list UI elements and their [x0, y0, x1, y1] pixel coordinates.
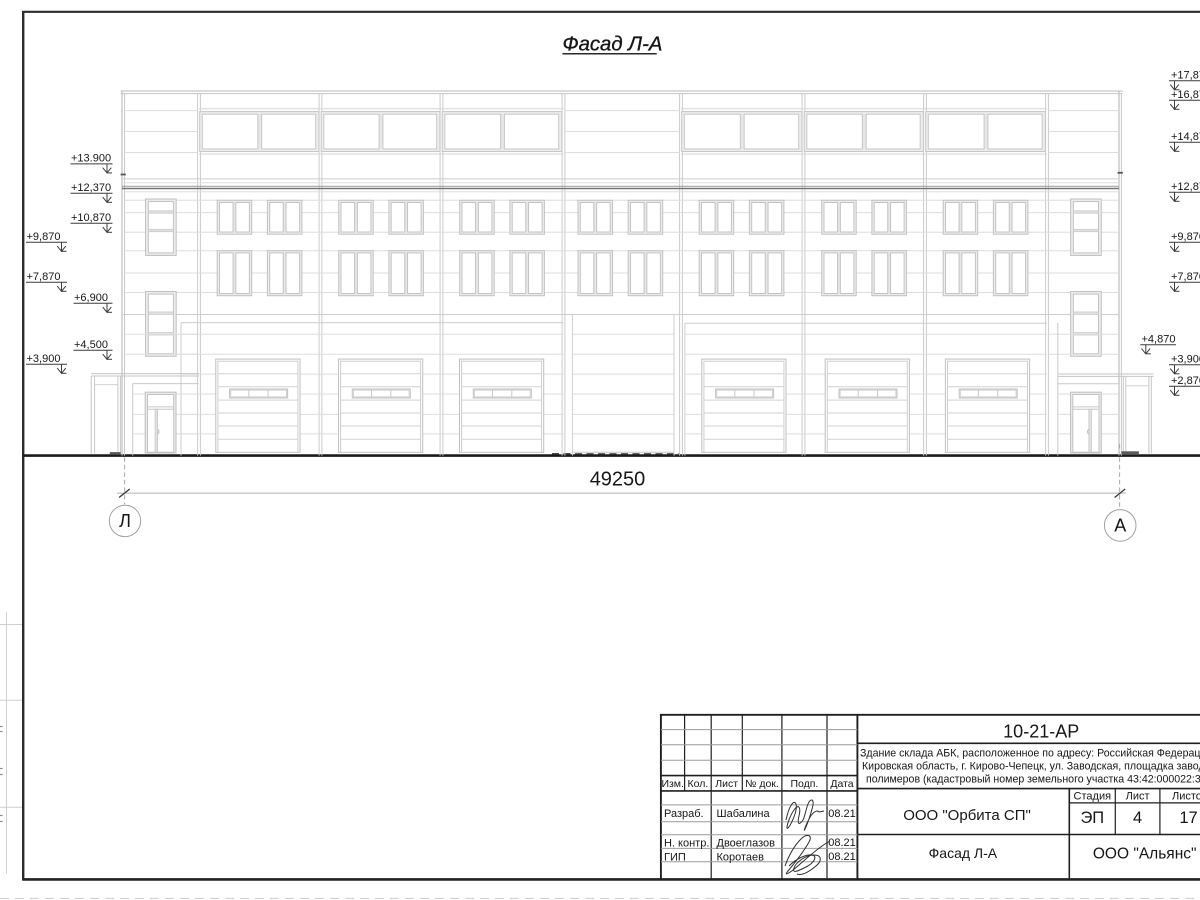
svg-text:ООО "Альянс": ООО "Альянс": [1093, 845, 1197, 862]
svg-text:+16,870: +16,870: [1171, 89, 1200, 101]
svg-text:Фасад Л-А: Фасад Л-А: [929, 845, 998, 861]
svg-text:+4,500: +4,500: [74, 339, 108, 351]
svg-text:Здание склада АБК, расположенн: Здание склада АБК, расположенное по адре…: [860, 747, 1200, 759]
svg-text:ООО "Орбита СП": ООО "Орбита СП": [903, 807, 1031, 824]
svg-text:+4,870: +4,870: [1142, 334, 1176, 346]
svg-text:Листов: Листов: [1172, 791, 1200, 803]
svg-text:+12,870: +12,870: [1171, 181, 1200, 193]
svg-text:Кол.: Кол.: [688, 778, 709, 790]
svg-text:+7,870: +7,870: [27, 271, 61, 283]
svg-text:полимеров (кадастровый номер з: полимеров (кадастровый номер земельного …: [866, 773, 1200, 785]
svg-text:10-21-АР: 10-21-АР: [1003, 722, 1079, 742]
svg-text:+12,370: +12,370: [71, 182, 111, 194]
svg-text:+2,870: +2,870: [1171, 375, 1200, 387]
svg-text:+9,870: +9,870: [1171, 231, 1200, 243]
svg-text:+10,870: +10,870: [71, 212, 111, 224]
svg-text:Дата: Дата: [830, 778, 853, 790]
svg-text:Н. контр.: Н. контр.: [664, 837, 709, 849]
svg-text:+13.900: +13.900: [71, 153, 111, 165]
svg-text:08.21: 08.21: [828, 808, 856, 820]
svg-text:+6,900: +6,900: [74, 292, 108, 304]
svg-text:Шабалина: Шабалина: [717, 808, 771, 820]
svg-text:Лист: Лист: [715, 778, 738, 790]
svg-text:08.21: 08.21: [828, 837, 856, 849]
svg-text:+3,900: +3,900: [27, 353, 61, 365]
svg-text:ГИП: ГИП: [664, 851, 686, 863]
svg-text:А: А: [1114, 516, 1126, 536]
svg-text:Коротаев: Коротаев: [717, 851, 765, 863]
svg-text:+7,870: +7,870: [1171, 271, 1200, 283]
svg-text:Стадия: Стадия: [1074, 791, 1112, 803]
svg-text:Лист: Лист: [1126, 791, 1150, 803]
svg-text:ЭП: ЭП: [1080, 809, 1104, 827]
svg-text:Изм.: Изм.: [661, 778, 684, 790]
svg-text:Фасад Л-А: Фасад Л-А: [563, 34, 663, 56]
svg-text:Разраб.: Разраб.: [664, 808, 704, 820]
svg-text:№ док.: № док.: [745, 778, 779, 790]
svg-text:Двоеглазов: Двоеглазов: [717, 837, 776, 849]
svg-text:Л: Л: [119, 511, 131, 531]
svg-text:Подп.: Подп.: [790, 778, 818, 790]
svg-text:+3,900: +3,900: [1171, 354, 1200, 366]
svg-text:4: 4: [1133, 809, 1142, 827]
svg-text:17: 17: [1179, 809, 1197, 827]
svg-text:+14,870: +14,870: [1171, 131, 1200, 143]
svg-text:+9,870: +9,870: [27, 231, 61, 243]
svg-text:+17,870: +17,870: [1171, 70, 1200, 82]
svg-text:49250: 49250: [590, 469, 646, 491]
svg-text:08.21: 08.21: [828, 851, 856, 863]
svg-text:Кировская область, г. Кирово-Ч: Кировская область, г. Кирово-Чепецк, ул.…: [862, 760, 1200, 772]
